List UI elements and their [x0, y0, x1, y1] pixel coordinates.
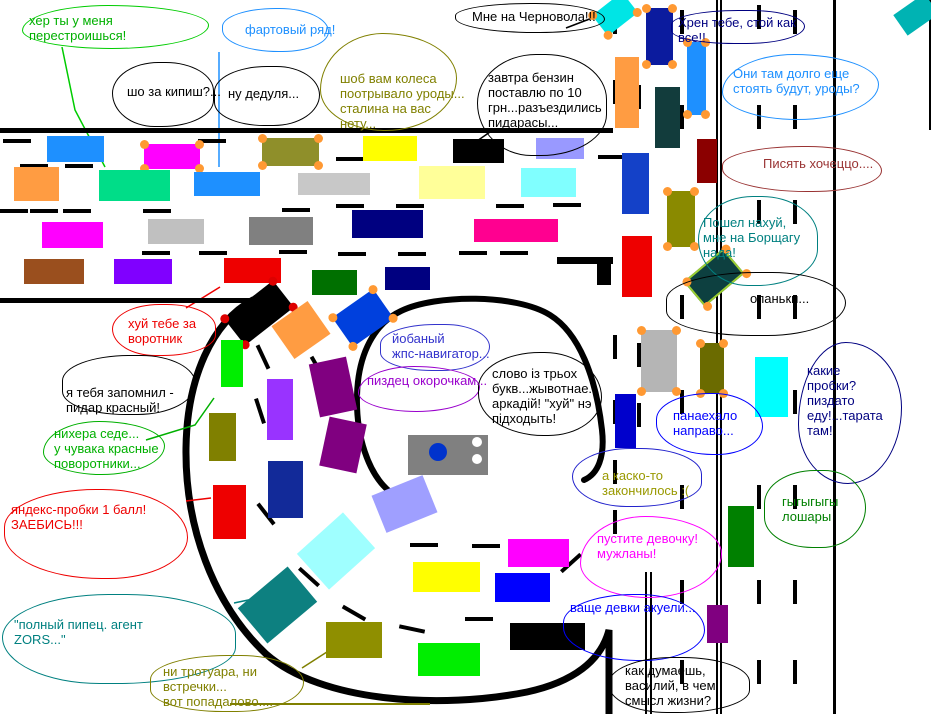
car-wheel: [258, 134, 267, 143]
car-wheel: [195, 140, 204, 149]
car: [728, 506, 754, 567]
car: [148, 219, 204, 244]
speech-bubble-text: шо за кипиш?...: [127, 84, 221, 99]
speech-bubble-text: как думаешь,василий, в чемсмысл жизни?: [625, 663, 716, 708]
lane-dash: [143, 209, 171, 213]
car: [14, 167, 59, 201]
lane-dash: [465, 617, 493, 621]
car: [262, 138, 319, 166]
car: [114, 259, 172, 284]
car: [419, 166, 485, 199]
car-wheel: [668, 4, 677, 13]
car-wheel: [696, 339, 705, 348]
lane-dash: [338, 252, 366, 256]
speech-bubble-text: хуй тебе заворотник: [128, 316, 196, 346]
car-wheel: [637, 326, 646, 335]
car: [697, 139, 717, 183]
car-wheel: [642, 60, 651, 69]
car: [249, 217, 313, 245]
car: [221, 340, 243, 387]
car-wheel: [314, 161, 323, 170]
lane-dash: [459, 251, 487, 255]
lane-dash: [336, 157, 364, 161]
speech-bubble-text: пиздец окорочкам...: [367, 373, 487, 388]
speech-bubble-text: а каско-тозакончилось :(: [602, 468, 689, 498]
lane-dash: [757, 660, 761, 684]
lane-dash: [199, 251, 227, 255]
car-wheel: [719, 339, 728, 348]
car: [413, 562, 480, 592]
speech-bubble-text: нихера седе...у чувака красныеповоротник…: [54, 426, 159, 471]
lane-dash: [3, 139, 31, 143]
vehicle-detail-dot: [429, 443, 447, 461]
road-edge: [0, 298, 253, 303]
lane-dash: [282, 208, 310, 212]
speech-bubble-text: ни тротуара, нивстречки...вот попадалово…: [163, 664, 273, 709]
speech-bubble-text: пустите девочку!мужланы!: [597, 531, 698, 561]
lane-dash: [500, 251, 528, 255]
lane-dash: [637, 403, 641, 427]
car: [363, 136, 417, 161]
car: [521, 168, 576, 197]
lane-dash: [65, 164, 93, 168]
speech-bubble-text: "полный пипец. агентZORS...": [14, 617, 143, 647]
speech-bubble-text: шоб вам колесапоотрывало уроды...сталина…: [340, 71, 465, 131]
car: [268, 461, 303, 518]
lane-dash: [30, 209, 58, 213]
car: [408, 435, 488, 475]
car-wheel: [668, 60, 677, 69]
car-wheel: [683, 110, 692, 119]
car: [352, 210, 423, 238]
car: [47, 136, 104, 162]
car: [707, 605, 728, 643]
lane-dash: [757, 580, 761, 604]
lane-dash: [396, 204, 424, 208]
speech-bubble-text: Пошел нахуй,мне на Борщагунада!: [703, 215, 800, 260]
lane-dash: [63, 209, 91, 213]
lane-dash: [142, 251, 170, 255]
car: [99, 170, 170, 201]
lane-dash: [757, 485, 761, 509]
car: [418, 643, 480, 676]
speech-bubble-text: ну дедуля...: [228, 86, 299, 101]
lane-dash: [279, 250, 307, 254]
speech-bubble-text: я тебя запомнил -пидар красный!: [66, 385, 174, 415]
car: [646, 8, 673, 65]
car: [615, 394, 636, 448]
car: [326, 622, 382, 658]
lane-dash: [613, 335, 617, 359]
speech-bubble-text: гыгыгыгылошары: [782, 494, 838, 524]
lane-dash: [793, 580, 797, 604]
car: [622, 153, 649, 214]
car: [209, 413, 236, 461]
car: [622, 236, 652, 297]
car-wheel: [663, 242, 672, 251]
car-wheel: [672, 326, 681, 335]
lane-dash: [410, 543, 438, 547]
car: [24, 259, 84, 284]
car: [615, 57, 639, 128]
car-wheel: [314, 134, 323, 143]
stop-line: [597, 258, 611, 285]
car: [700, 343, 724, 394]
lane-dash: [553, 203, 581, 207]
speech-bubble-text: Писять хочеццо....: [763, 156, 873, 171]
car: [267, 379, 293, 440]
car-wheel: [690, 187, 699, 196]
car-wheel: [672, 387, 681, 396]
speech-bubble-text: какиепробки?пиздатоеду!...тарататам!: [807, 363, 883, 438]
car: [508, 539, 569, 567]
car: [474, 219, 558, 242]
speech-bubble-text: слово із трьохбукв...жывотнае...аркадій!…: [492, 366, 599, 426]
speech-bubble-text: Они там долго ещестоять будут, уроды?: [733, 66, 860, 96]
car: [312, 270, 357, 295]
speech-bubble-text: опаньки...: [750, 291, 809, 306]
speech-bubble-text: Мне на Черновола!!!: [472, 9, 596, 24]
car: [298, 173, 370, 195]
car: [144, 144, 200, 169]
lane-dash: [0, 209, 28, 213]
car: [755, 357, 788, 417]
vehicle-detail-dot: [472, 454, 482, 464]
car: [687, 42, 706, 115]
speech-bubble-text: Хрен тебе, стой каквсе!!: [678, 15, 796, 45]
car-wheel: [663, 187, 672, 196]
car: [42, 222, 103, 248]
speech-bubble-text: хер ты у меняперестроишься!: [29, 13, 126, 43]
speech-bubble-text: панаехалонаправо...: [673, 408, 737, 438]
lane-dash: [398, 252, 426, 256]
speech-bubble-text: яндекс-пробки 1 балл!ЗАЕБИСЬ!!!: [11, 502, 146, 532]
car-wheel: [637, 387, 646, 396]
lane-dash: [472, 544, 500, 548]
speech-bubble-text: йобаныйжпс-навигатор...: [392, 331, 490, 361]
vehicle-detail-dot: [472, 437, 482, 447]
car: [194, 172, 260, 196]
car: [495, 573, 550, 602]
paint-canvas: хер ты у меняперестроишься!фартовый ряд!…: [0, 0, 931, 714]
lane-dash: [496, 204, 524, 208]
car-wheel: [258, 161, 267, 170]
car: [213, 485, 246, 539]
lane-dash: [793, 390, 797, 414]
car: [385, 267, 430, 290]
car-wheel: [140, 140, 149, 149]
speech-bubble-text: завтра бензинпоставлю по 10грн...разъезд…: [488, 70, 602, 130]
car: [655, 87, 680, 148]
lane-dash: [336, 204, 364, 208]
car-wheel: [701, 110, 710, 119]
car: [641, 330, 677, 392]
lane-dash: [793, 660, 797, 684]
speech-bubble-text: фартовый ряд!: [245, 22, 335, 37]
car: [667, 191, 695, 247]
speech-bubble-text: ваще девки акуели...: [570, 600, 696, 615]
car-wheel: [642, 4, 651, 13]
